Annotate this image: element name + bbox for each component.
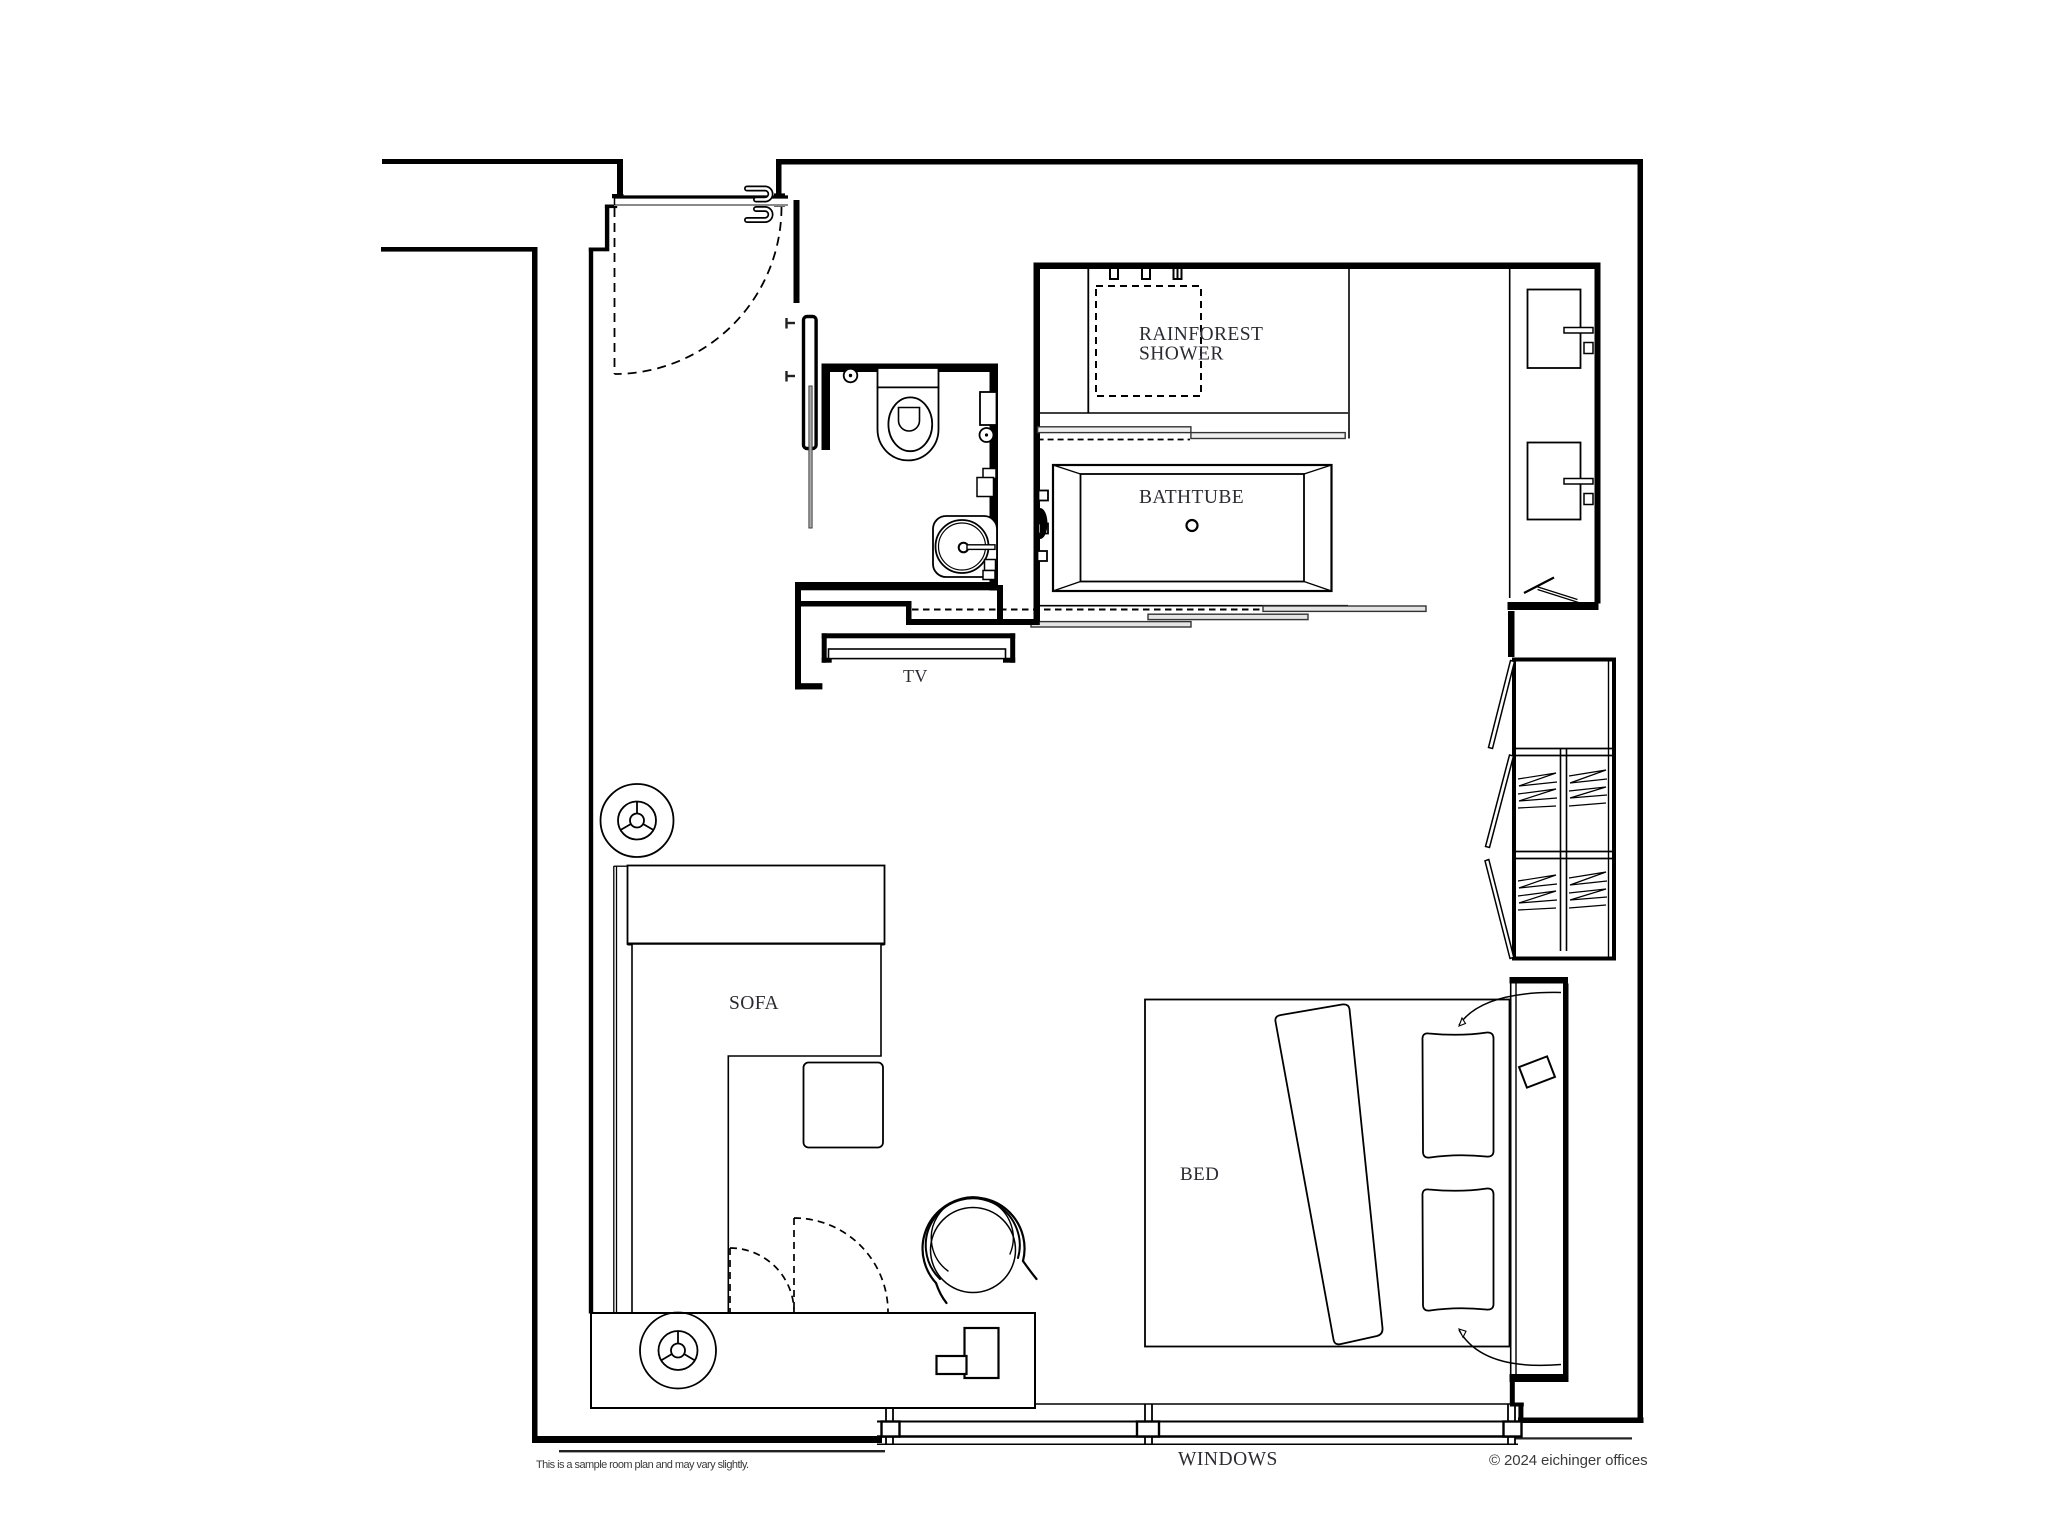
svg-text:BED: BED	[1180, 1164, 1219, 1185]
svg-text:SOFA: SOFA	[729, 993, 779, 1014]
svg-text:BATHTUBE: BATHTUBE	[1139, 487, 1244, 508]
svg-text:WINDOWS: WINDOWS	[1178, 1449, 1278, 1470]
svg-text:This is a sample room plan and: This is a sample room plan and may vary …	[536, 1459, 749, 1471]
svg-text:© 2024 eichinger offices: © 2024 eichinger offices	[1489, 1452, 1647, 1469]
svg-text:SHOWER: SHOWER	[1139, 344, 1224, 365]
svg-text:RAINFOREST: RAINFOREST	[1139, 324, 1263, 345]
svg-text:TV: TV	[903, 666, 928, 686]
